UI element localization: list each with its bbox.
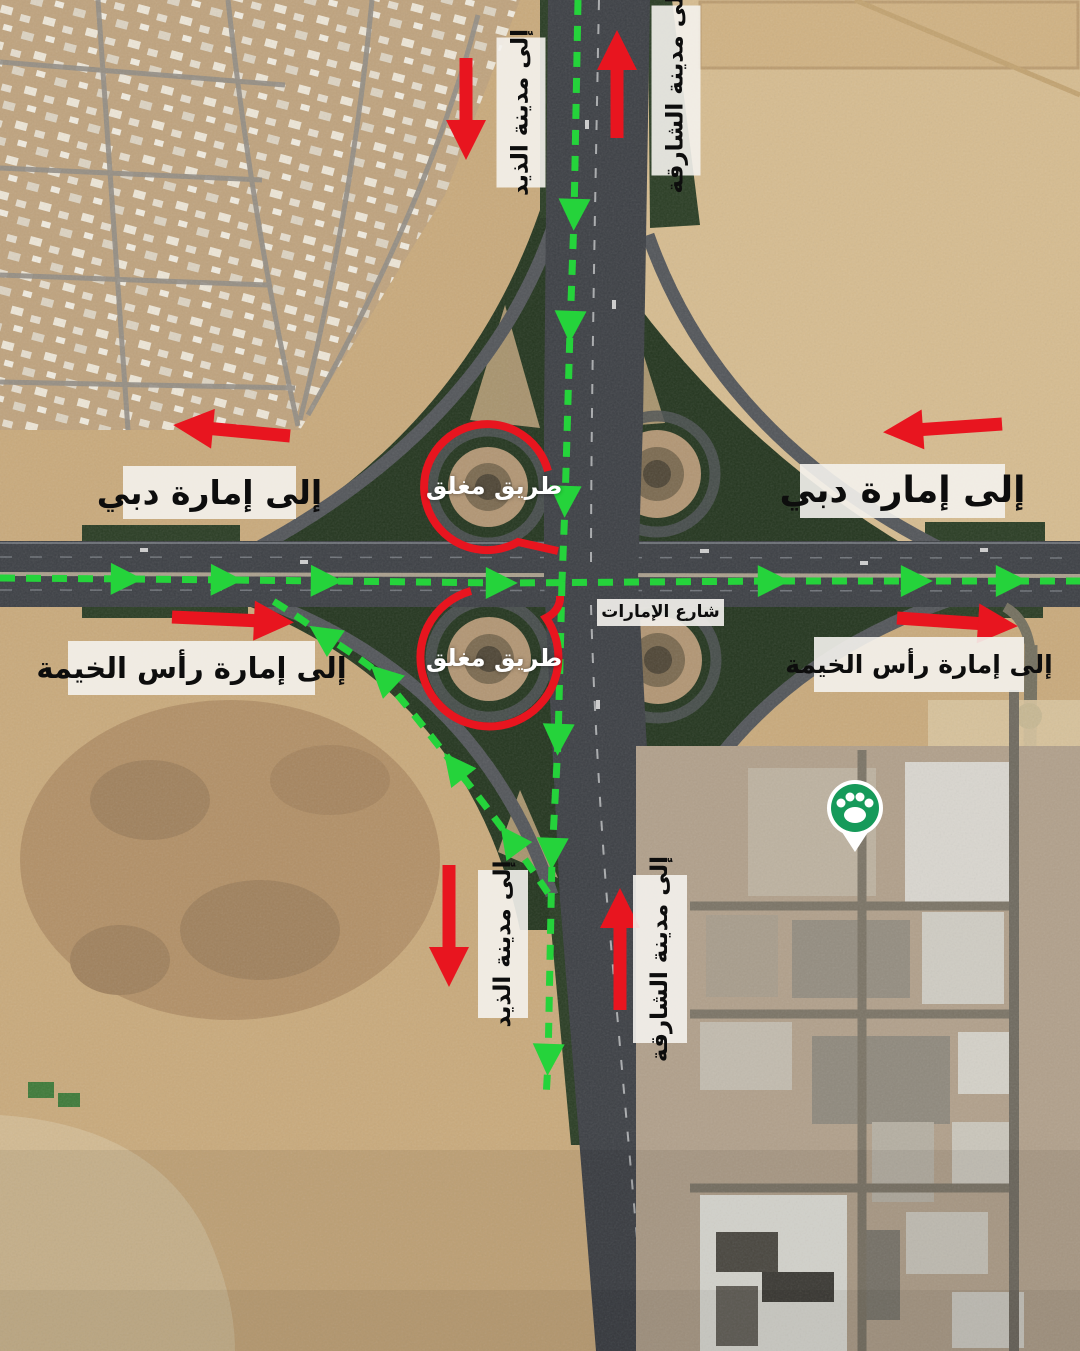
label-to-rak-left: إلى إمارة رأس الخيمة bbox=[68, 641, 315, 695]
label-to-dhaid-top: إلى مدينة الذيد bbox=[497, 38, 546, 188]
label-to-dubai-right: إلى إمارة دبي bbox=[800, 464, 1005, 518]
label-road-closed-south: طريق مغلق bbox=[414, 640, 574, 676]
label-to-rak-right: إلى إمارة رأس الخيمة bbox=[814, 637, 1024, 692]
traffic-advisory-map: إلى مدينة الذيد إلى مدينة الشارقة إلى إم… bbox=[0, 0, 1080, 1351]
red-arrow-east-to-rak-right bbox=[897, 618, 986, 624]
label-emirates-road: شارع الإمارات bbox=[597, 599, 724, 626]
label-road-closed-north: طريق مغلق bbox=[414, 468, 574, 504]
red-arrow-west-to-dubai-left bbox=[205, 428, 290, 436]
label-to-dhaid-bottom: إلى مدينة الذيد bbox=[478, 870, 528, 1018]
label-to-sharjah-top: إلى مدينة الشارقة bbox=[652, 6, 701, 176]
red-arrow-west-to-dubai-right bbox=[915, 424, 1002, 430]
detour-route-eastbound bbox=[0, 578, 1080, 583]
label-to-sharjah-bottom: إلى مدينة الشارقة bbox=[633, 875, 687, 1043]
paw-pin-icon bbox=[827, 780, 883, 852]
red-arrow-east-to-rak-left bbox=[172, 617, 262, 621]
label-to-dubai-left: إلى إمارة دبي bbox=[123, 466, 296, 519]
direction-arrows bbox=[172, 58, 1002, 1010]
